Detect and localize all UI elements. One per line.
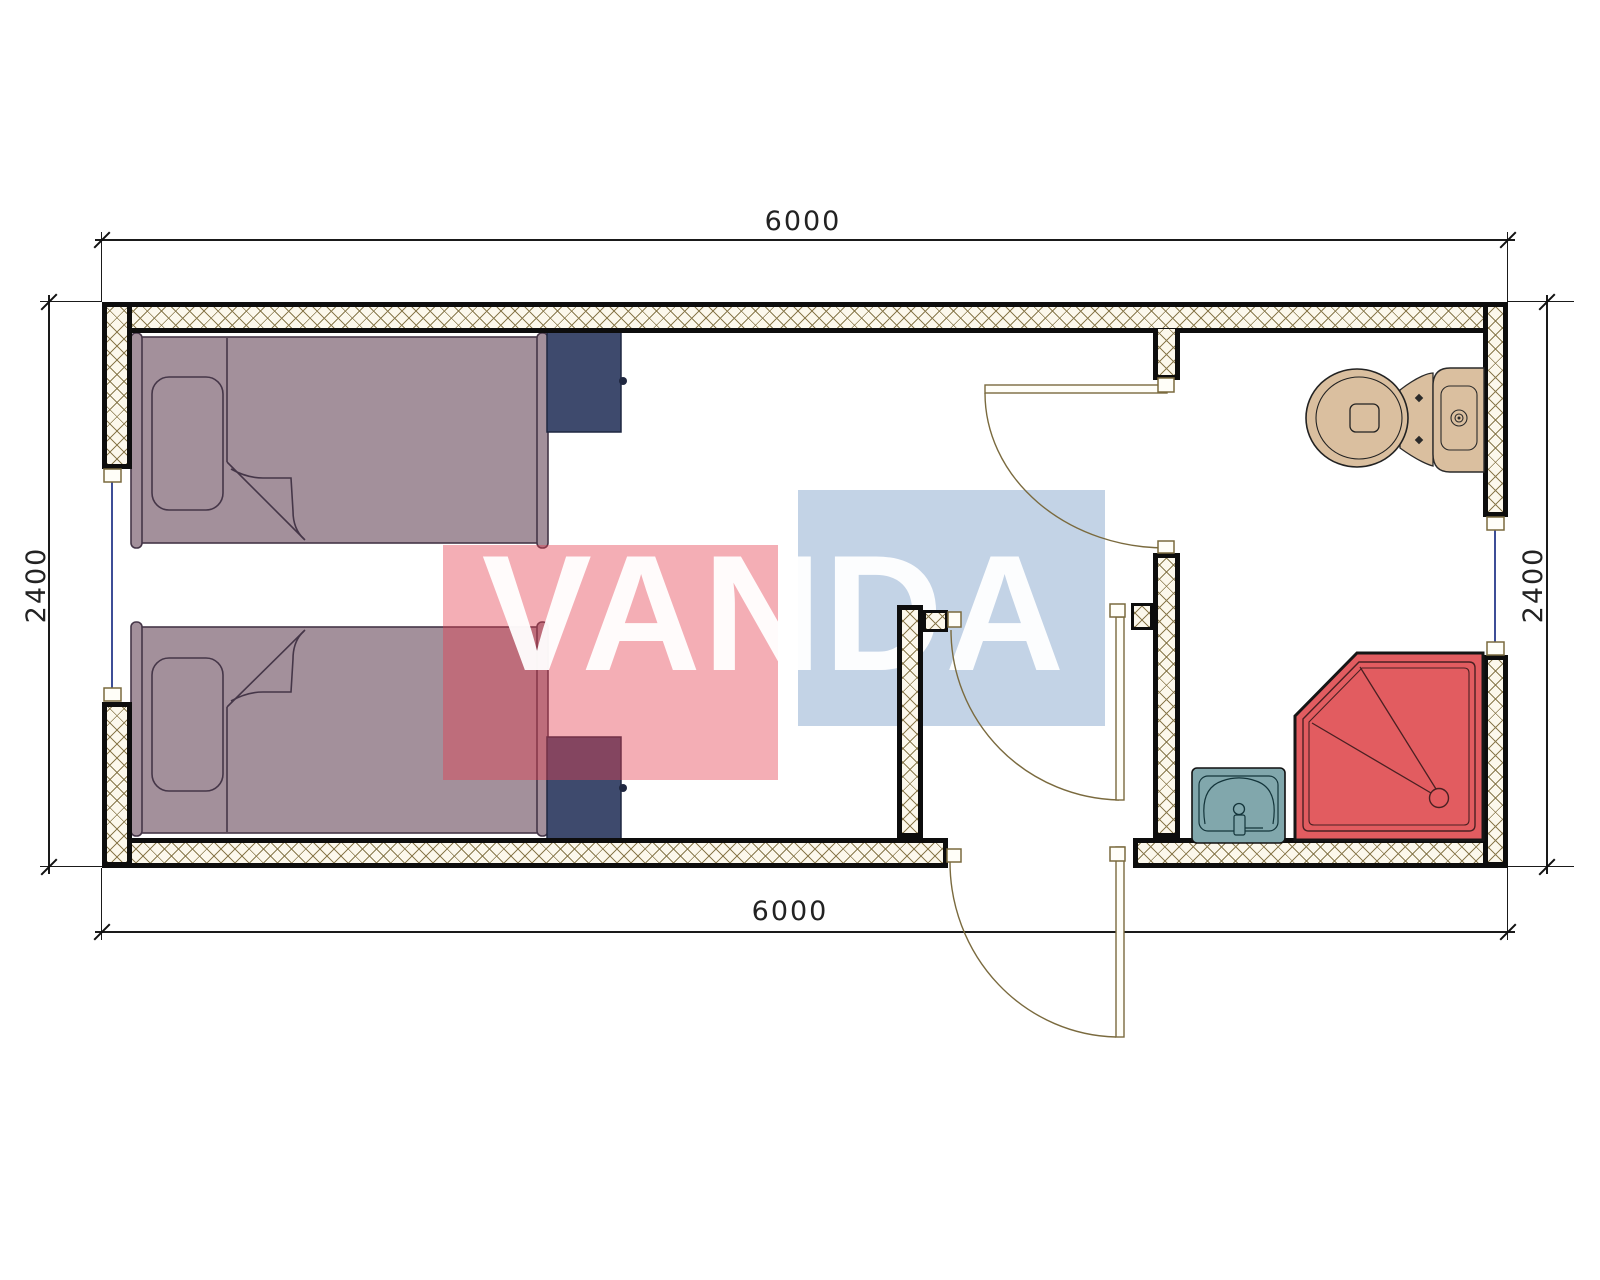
wall-top (102, 302, 1508, 333)
ext-line (1507, 232, 1508, 302)
wall-bottom-right (1133, 838, 1508, 868)
dim-text-top: 6000 (743, 207, 863, 237)
floor-plan-canvas: VANDA (0, 0, 1600, 1280)
window-right-glass (1494, 530, 1496, 642)
wall-bottom-left (102, 838, 948, 868)
dim-line-bottom (95, 931, 1515, 933)
window-left-glass (111, 482, 113, 688)
window-right-top-block (1487, 517, 1504, 530)
toilet (1306, 368, 1484, 472)
nightstand-top (547, 330, 627, 432)
ext-line (1508, 866, 1574, 867)
shower-tray (1295, 653, 1483, 840)
window-left-top-block (104, 469, 121, 482)
entrance-door-arc (950, 862, 1116, 1037)
door-stop-corridor-left (923, 610, 948, 632)
window-right-bottom-block (1487, 642, 1504, 655)
wall-right-upper (1483, 302, 1508, 517)
bathroom-door-leaf (985, 385, 1167, 393)
sink-faucet (1234, 804, 1245, 815)
wall-stub-bathroom-door (1153, 329, 1180, 380)
toilet-bowl (1306, 369, 1408, 467)
ext-line (101, 232, 102, 302)
bedroom-door-leaf (1116, 617, 1124, 800)
wall-partition-bathroom (1153, 553, 1180, 838)
dim-text-left: 2400 (22, 525, 52, 645)
shower-drain (1430, 789, 1449, 808)
entrance-door-leaf (1116, 847, 1124, 1037)
wall-left-lower (102, 702, 132, 867)
ext-line (1508, 301, 1574, 302)
sink (1192, 768, 1285, 843)
wall-left-upper (102, 302, 132, 469)
pillow-top (152, 377, 223, 510)
dim-text-bottom: 6000 (730, 897, 850, 927)
pillow-bottom (152, 658, 223, 791)
dim-text-right: 2400 (1519, 525, 1549, 645)
bed-top (131, 333, 548, 548)
toilet-tank (1433, 368, 1484, 472)
dim-line-top (95, 239, 1515, 241)
wall-right-lower (1483, 655, 1508, 867)
door-stop-corridor-right (1131, 603, 1153, 630)
watermark-text: VANDA (443, 533, 1105, 693)
wall-corridor-left (897, 605, 923, 838)
window-left-bottom-block (104, 688, 121, 701)
